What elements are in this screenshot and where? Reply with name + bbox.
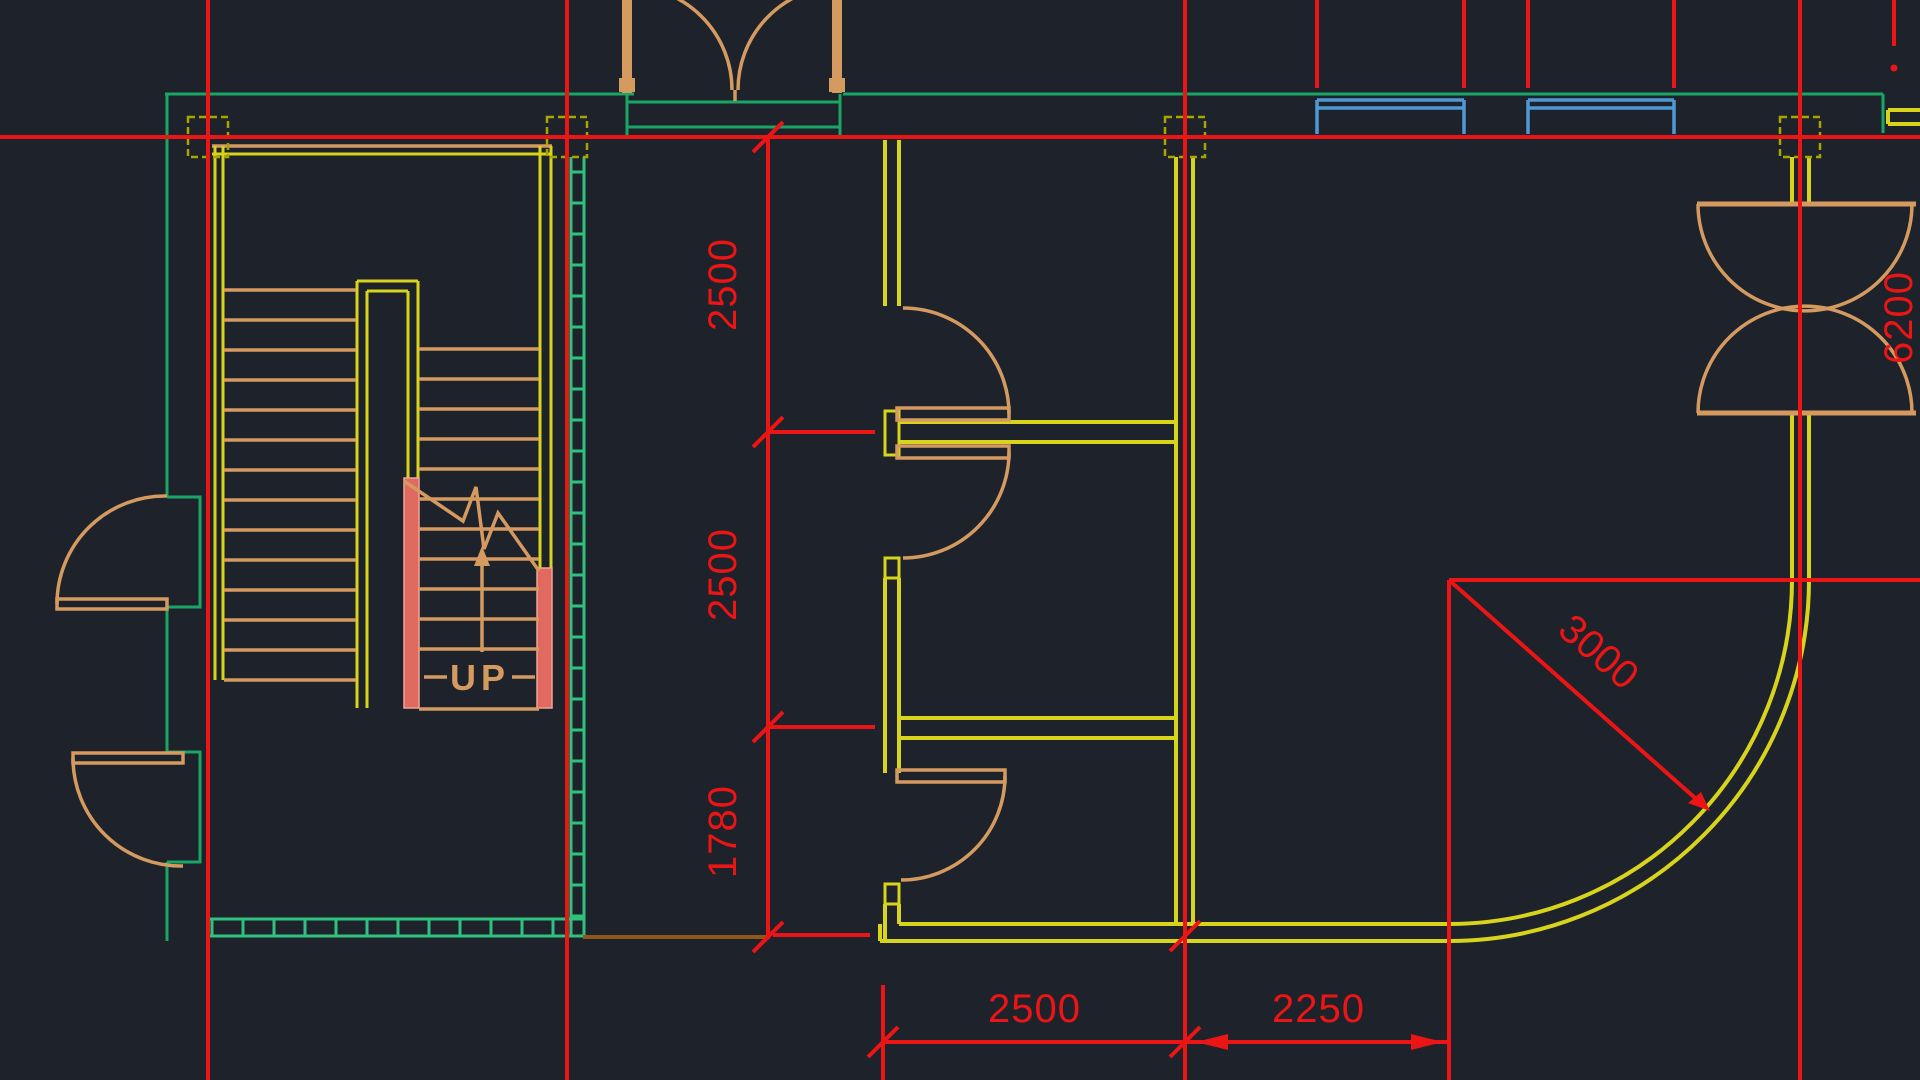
room-divider-wall-a [899,422,1176,442]
cad-canvas[interactable]: UP [0,0,1920,1080]
stair-stringer-pink-right [537,568,552,708]
rooms-left-wall [885,140,899,941]
exterior-door-2 [73,753,183,866]
door-jamb-recess-1 [167,497,200,607]
dimension-graphics [753,122,1710,1080]
window-2 [1528,100,1674,134]
dim-bottom-2500: 2500 [988,987,1080,1031]
grid-point-dot [1891,65,1898,72]
dim-vertical-2500-upper: 2500 [701,239,745,331]
wall-pier-3 [885,884,899,904]
bottom-curved-wall [880,413,1809,941]
dim-clipped-right-edge: 6200 [1877,272,1920,364]
exterior-walls-teal [165,94,1883,941]
dim-vertical-1780: 1780 [701,786,745,878]
hatched-wall-vertical [571,157,584,936]
room-walls-yellow [880,110,1920,941]
room-door-2 [897,446,1009,558]
room-door-3 [897,770,1005,880]
dim-bottom-2250: 2250 [1272,987,1364,1031]
vertical-dimension-chain [753,122,875,952]
room-divider-wall-b [899,718,1176,738]
stair-treads-right-flight [419,349,539,709]
window-1 [1317,100,1464,134]
stair-treads-left-flight [224,290,356,680]
up-label: UP [450,657,510,698]
exterior-door-1 [57,496,167,609]
hatched-wall-bottom [210,919,584,936]
windows [1317,100,1674,134]
right-edge-wall-stub [1888,110,1920,124]
entrance-double-door [619,0,845,101]
dim-vertical-2500-lower: 2500 [701,529,745,621]
floor-plan-drawing: UP [0,0,1920,1080]
door-jamb-recess-2 [167,752,200,862]
stair-stringer-pink-left [404,478,419,708]
left-exterior-wall [167,94,200,941]
stair-direction-arrow [474,546,490,652]
room-door-1 [897,308,1009,420]
stair-enclosure-walls [212,146,552,680]
wall-pier-2 [885,558,899,578]
stairwell: UP [212,146,552,709]
